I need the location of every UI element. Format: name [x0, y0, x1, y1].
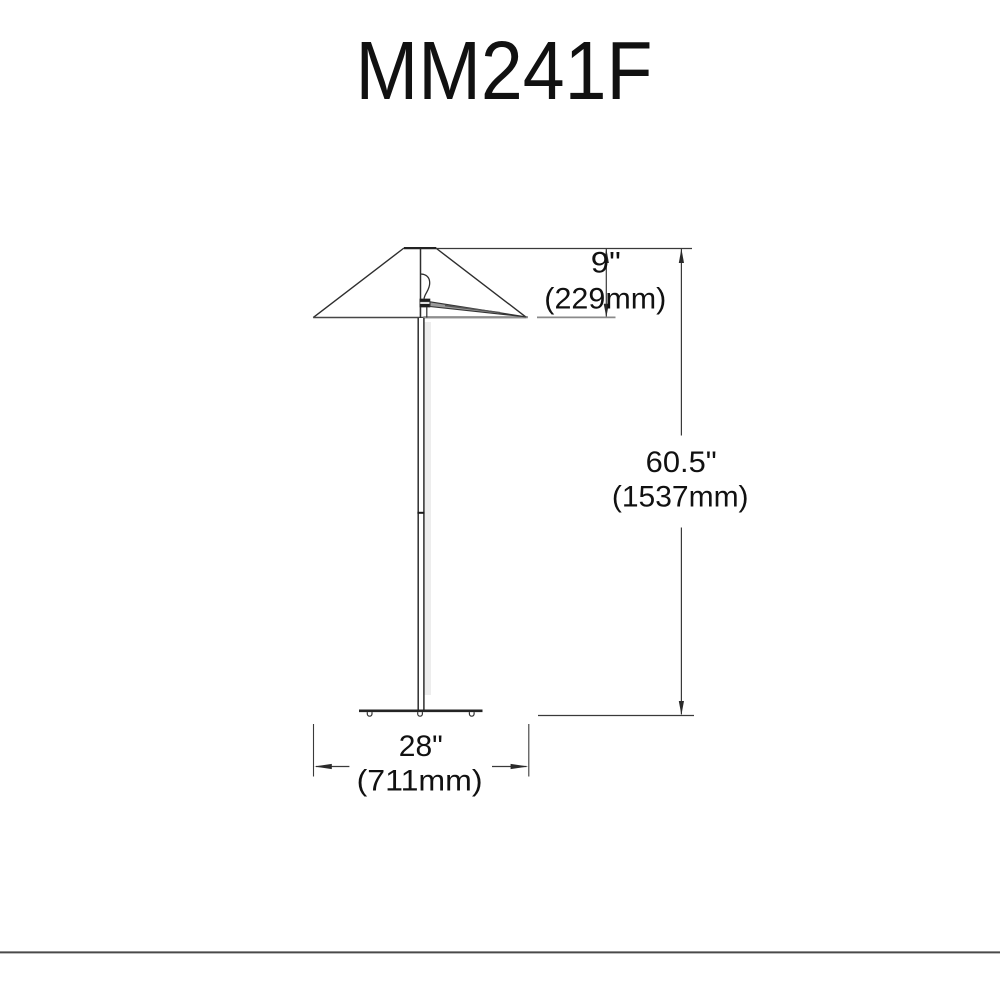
svg-text:28": 28"	[399, 730, 443, 763]
svg-text:60.5": 60.5"	[646, 446, 717, 479]
svg-text:MM241F: MM241F	[356, 24, 653, 117]
svg-text:(229mm): (229mm)	[544, 283, 666, 316]
svg-text:9": 9"	[591, 247, 621, 280]
svg-text:(711mm): (711mm)	[357, 765, 483, 798]
svg-text:(1537mm): (1537mm)	[612, 481, 749, 514]
